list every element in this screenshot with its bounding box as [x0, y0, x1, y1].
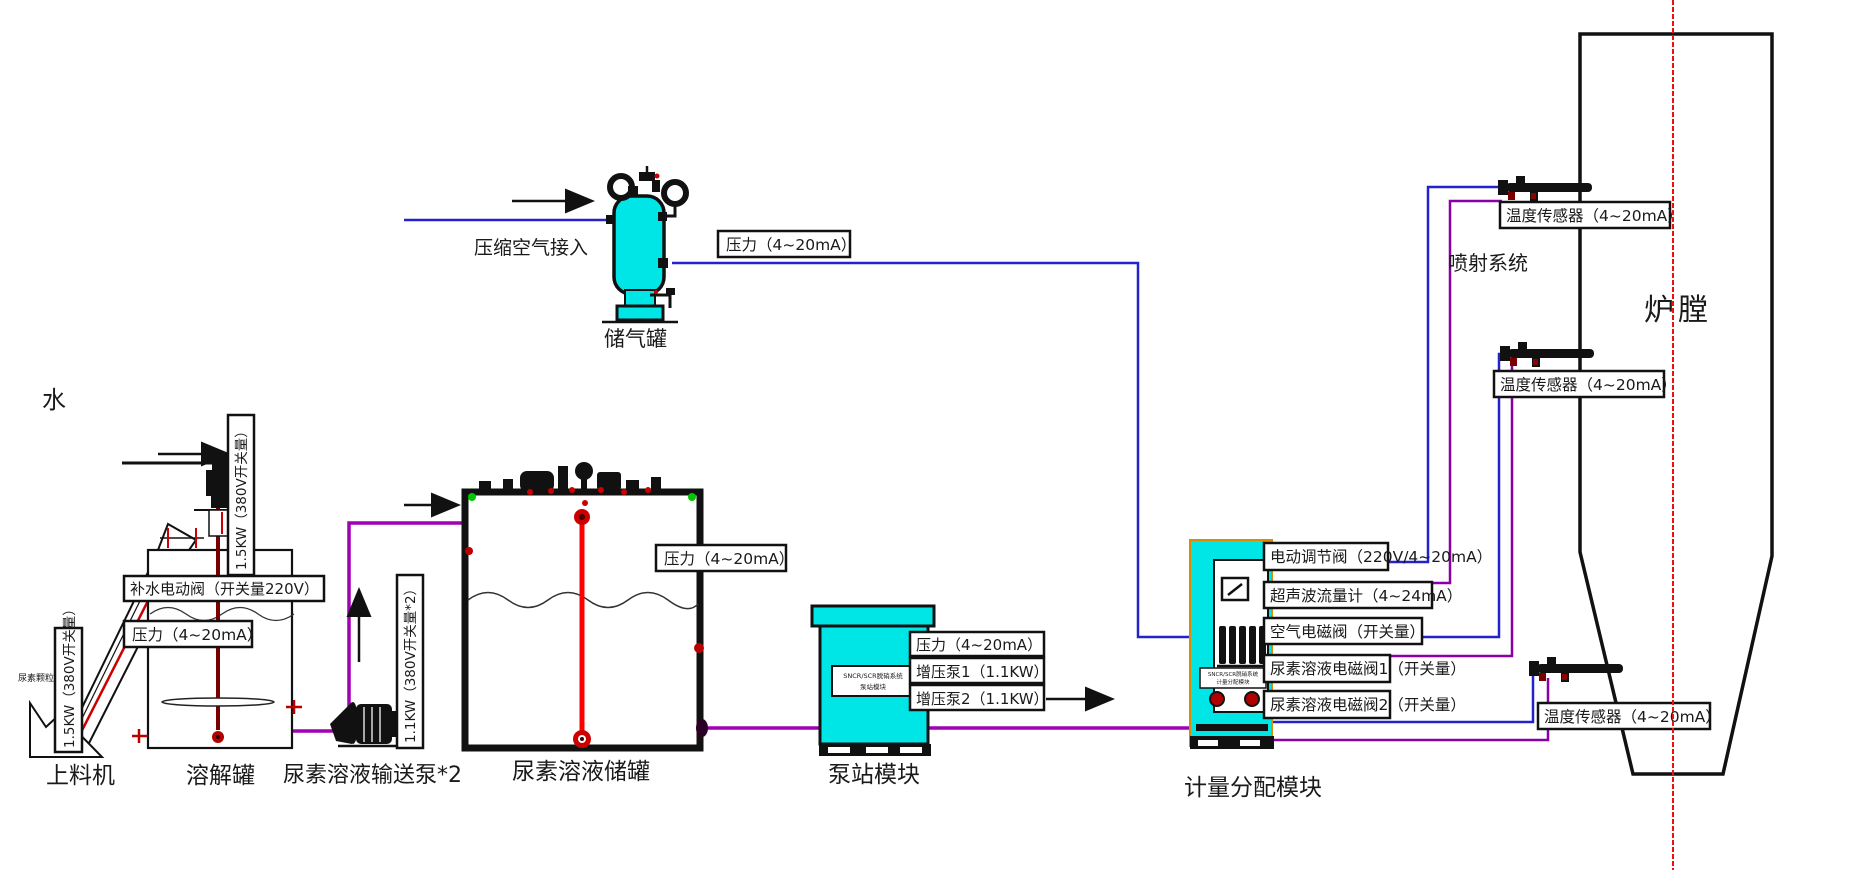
regulating-valve-label: 电动调节阀（220V/4~20mA） [1270, 548, 1492, 566]
feeder-power-label-group: 1.5KW（380V开关量） [55, 602, 82, 752]
station-nameplate [832, 666, 914, 696]
air-tank-name: 储气罐 [604, 327, 667, 351]
drain-valve-dot [654, 290, 658, 294]
urea-granules-label: 尿素颗粒 [18, 672, 54, 684]
pump-power-label: 1.1KW（380V开关量*2） [403, 582, 419, 743]
air-solenoid-label: 空气电磁阀（开关量） [1270, 623, 1425, 641]
metering-lower-rail [1196, 724, 1268, 731]
air-tank-neck [625, 290, 655, 306]
inlet-fitting-green [468, 493, 476, 501]
feeder-power-label: 1.5KW（380V开关量） [62, 602, 78, 748]
storage-tank-name: 尿素溶液储罐 [512, 759, 650, 785]
storage-tank [465, 462, 708, 748]
station-skid-slots [828, 747, 922, 753]
injection-system-name: 喷射系统 [1448, 251, 1528, 275]
fill-valve-label: 补水电动阀（开关量220V） [130, 580, 319, 598]
tank-bottom-valve-core [216, 735, 220, 739]
furnace-outline [1580, 34, 1772, 774]
transfer-pump [330, 702, 401, 746]
air-tank-to-module-line [672, 263, 1192, 637]
urea-valve1-wire [1268, 364, 1512, 656]
storage-wall-valve [465, 547, 473, 555]
urea-valve1-label: 尿素溶液电磁阀1（开关量） [1270, 660, 1466, 678]
pump-station-name: 泵站模块 [828, 762, 920, 788]
air-tank-base [617, 306, 663, 320]
injector-lance-1 [1498, 176, 1592, 201]
compressed-air-label: 压缩空气接入 [474, 237, 588, 259]
temp-sensor2-label: 温度传感器（4~20mA） [1500, 376, 1677, 394]
feeder-name: 上料机 [46, 763, 115, 789]
mixer-power-label-group: 1.5KW（380V开关量） [228, 415, 254, 575]
metering-module-name: 计量分配模块 [1184, 775, 1322, 801]
metering-nameplate-line2: 计量分配模块 [1216, 678, 1250, 686]
temp-sensor1-label: 温度传感器（4~20mA） [1506, 207, 1683, 225]
hand-valve-2 [1245, 692, 1259, 706]
regulating-valve-wire [1268, 187, 1505, 562]
pump-motor [356, 704, 392, 744]
mixer-power-label: 1.5KW（380V开关量） [234, 424, 250, 570]
flowmeter-label: 超声波流量计（4~24mA） [1270, 587, 1462, 605]
relief-valve-dot [655, 174, 660, 179]
metering-module: SNCR/SCR脱硝系统 计量分配模块 [1190, 540, 1274, 749]
water-label: 水 [42, 386, 66, 414]
booster1-label: 增压泵1（1.1KW） [916, 663, 1049, 681]
air-tank-vessel [614, 196, 664, 294]
transfer-pump-name: 尿素溶液输送泵*2 [283, 763, 462, 788]
urea-valve2-label: 尿素溶液电磁阀2（开关量） [1270, 696, 1466, 714]
booster2-label: 增压泵2（1.1KW） [916, 690, 1049, 708]
air-storage-tank [602, 166, 686, 322]
station-lid [812, 606, 934, 626]
dissolving-tank-name: 溶解罐 [186, 763, 255, 789]
station-nameplate-line1: SNCR/SCR脱硝系统 [843, 671, 903, 680]
metering-nameplate-line1: SNCR/SCR脱硝系统 [1208, 670, 1259, 678]
pressure-gauge-right [664, 182, 686, 204]
air-pressure-label: 压力（4~20mA） [726, 236, 856, 254]
level-gauge-top-core [579, 514, 585, 520]
vent-fitting-green [688, 493, 696, 501]
storage-top-fittings [479, 462, 661, 492]
diagram-canvas: SNCR/SCR脱硝系统 泵站模块 SNCR/SCR脱硝系统 计量分配模块 [0, 0, 1862, 878]
storage-side-valve [694, 643, 704, 653]
pump-power-label-group: 1.1KW（380V开关量*2） [397, 575, 423, 748]
station-pressure-label: 压力（4~20mA） [916, 636, 1042, 654]
furnace-name: 炉膛 [1644, 293, 1712, 328]
hand-valve-1 [1210, 692, 1224, 706]
temp-sensor3-label: 温度传感器（4~20mA） [1544, 708, 1721, 726]
mixer-propeller [162, 698, 274, 706]
station-nameplate-line2: 泵站模块 [860, 682, 887, 691]
storage-outlet-fitting [696, 719, 708, 737]
level-gauge-bottom-core [580, 737, 584, 741]
storage-pressure-label: 压力（4~20mA） [664, 550, 794, 568]
dissolve-pressure-label: 压力（4~20mA） [132, 626, 262, 644]
sncr-scr-process-diagram: SNCR/SCR脱硝系统 泵站模块 SNCR/SCR脱硝系统 计量分配模块 [0, 0, 1862, 878]
